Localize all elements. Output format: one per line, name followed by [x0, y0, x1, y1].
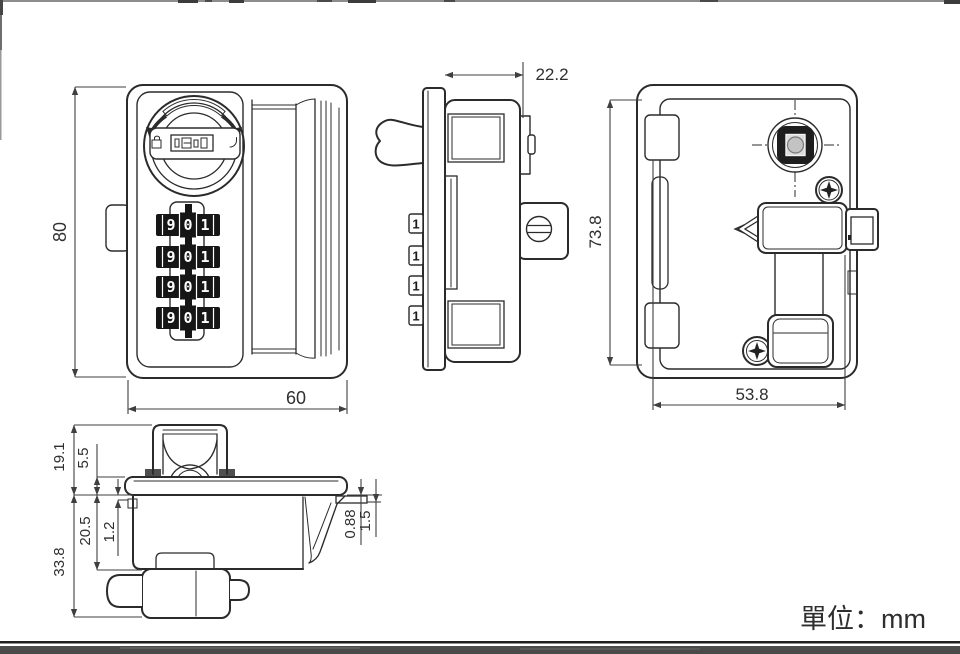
- latch-block: [758, 203, 847, 253]
- hinge-block-top: [645, 115, 679, 160]
- mounting-flange: [423, 88, 445, 370]
- dim-top-right-stack: 0.88 1.5: [342, 479, 382, 545]
- combination-wheel[interactable]: 9 0 1: [156, 306, 220, 331]
- latch-bolt: [846, 209, 878, 250]
- dim-back-width-label: 53.8: [735, 385, 768, 404]
- tab-digit: 1: [412, 309, 419, 324]
- technical-drawing-page: 9 0 1 9 0 1 9: [0, 0, 960, 654]
- dim-front-width-label: 60: [286, 388, 306, 408]
- dim-front-height-label: 80: [50, 222, 70, 242]
- wheel-digit[interactable]: 0: [183, 309, 192, 327]
- lock-drawing-svg: 9 0 1 9 0 1 9: [0, 0, 960, 654]
- wheel-digit[interactable]: 9: [166, 248, 175, 266]
- dial-band: [150, 128, 240, 159]
- top-plate: [125, 477, 347, 495]
- front-view: 9 0 1 9 0 1 9: [106, 85, 347, 378]
- dial-profile-arc: [171, 465, 209, 477]
- scan-top-border: [0, 0, 960, 4]
- wheel-digit[interactable]: 0: [183, 278, 192, 296]
- cam-nub: [528, 135, 535, 154]
- cam-follower-block: [768, 315, 833, 367]
- phillips-screw-icon: [743, 337, 771, 365]
- dim-total-height-label: 33.8: [51, 547, 68, 576]
- scan-left-border: [0, 0, 3, 140]
- tab-digit: 1: [412, 249, 419, 264]
- wheel-digit[interactable]: 1: [200, 278, 209, 296]
- wheel-digit[interactable]: 0: [183, 216, 192, 234]
- phillips-screw-icon: [816, 177, 842, 203]
- wheel-digit[interactable]: 9: [166, 309, 175, 327]
- dim-body-depth-label: 20.5: [77, 516, 94, 545]
- spring-housing: [775, 253, 823, 315]
- side-view: 1 1 1 1: [376, 88, 568, 370]
- dim-back-height-label: 73.8: [586, 215, 605, 248]
- dim-front-width: 60: [128, 380, 347, 414]
- unit-label: 單位：mm: [800, 604, 926, 634]
- hinge-block-bottom: [645, 303, 679, 348]
- top-body: [128, 495, 367, 569]
- dim-lip-label: 1.2: [101, 522, 118, 543]
- wheel-digit[interactable]: 1: [200, 216, 209, 234]
- page-footer-rule: [0, 641, 960, 654]
- wheel-housing-profile: [156, 553, 214, 569]
- back-view: [637, 85, 878, 378]
- slotted-screw-icon: [527, 217, 552, 242]
- top-view: [107, 425, 367, 618]
- mount-clip: [145, 425, 235, 477]
- dim-upper-height-label: 19.1: [51, 442, 68, 471]
- dim-back-height: 73.8: [586, 100, 642, 365]
- combination-wheel[interactable]: 9 0 1: [156, 213, 220, 238]
- lower-housing: [107, 569, 249, 618]
- thumb-knob: [376, 120, 423, 166]
- tab-digit: 1: [412, 217, 419, 232]
- wheel-edge-tabs: 1 1 1 1: [409, 214, 423, 325]
- side-body: [445, 100, 520, 362]
- wheel-digit[interactable]: 9: [166, 216, 175, 234]
- dim-edge-gap-b-label: 1.5: [357, 511, 374, 532]
- dim-side-depth-label: 22.2: [535, 65, 568, 84]
- housing-bump: [107, 575, 142, 607]
- wheel-digit[interactable]: 1: [200, 309, 209, 327]
- wheel-digit[interactable]: 1: [200, 248, 209, 266]
- dim-clip-height-label: 5.5: [75, 448, 92, 469]
- tab-digit: 1: [412, 279, 419, 294]
- combination-wheel[interactable]: 9 0 1: [156, 275, 220, 300]
- combination-wheel[interactable]: 9 0 1: [156, 245, 220, 270]
- wheel-digit[interactable]: 9: [166, 278, 175, 296]
- housing-nub: [230, 580, 249, 600]
- wheel-digit[interactable]: 0: [183, 248, 192, 266]
